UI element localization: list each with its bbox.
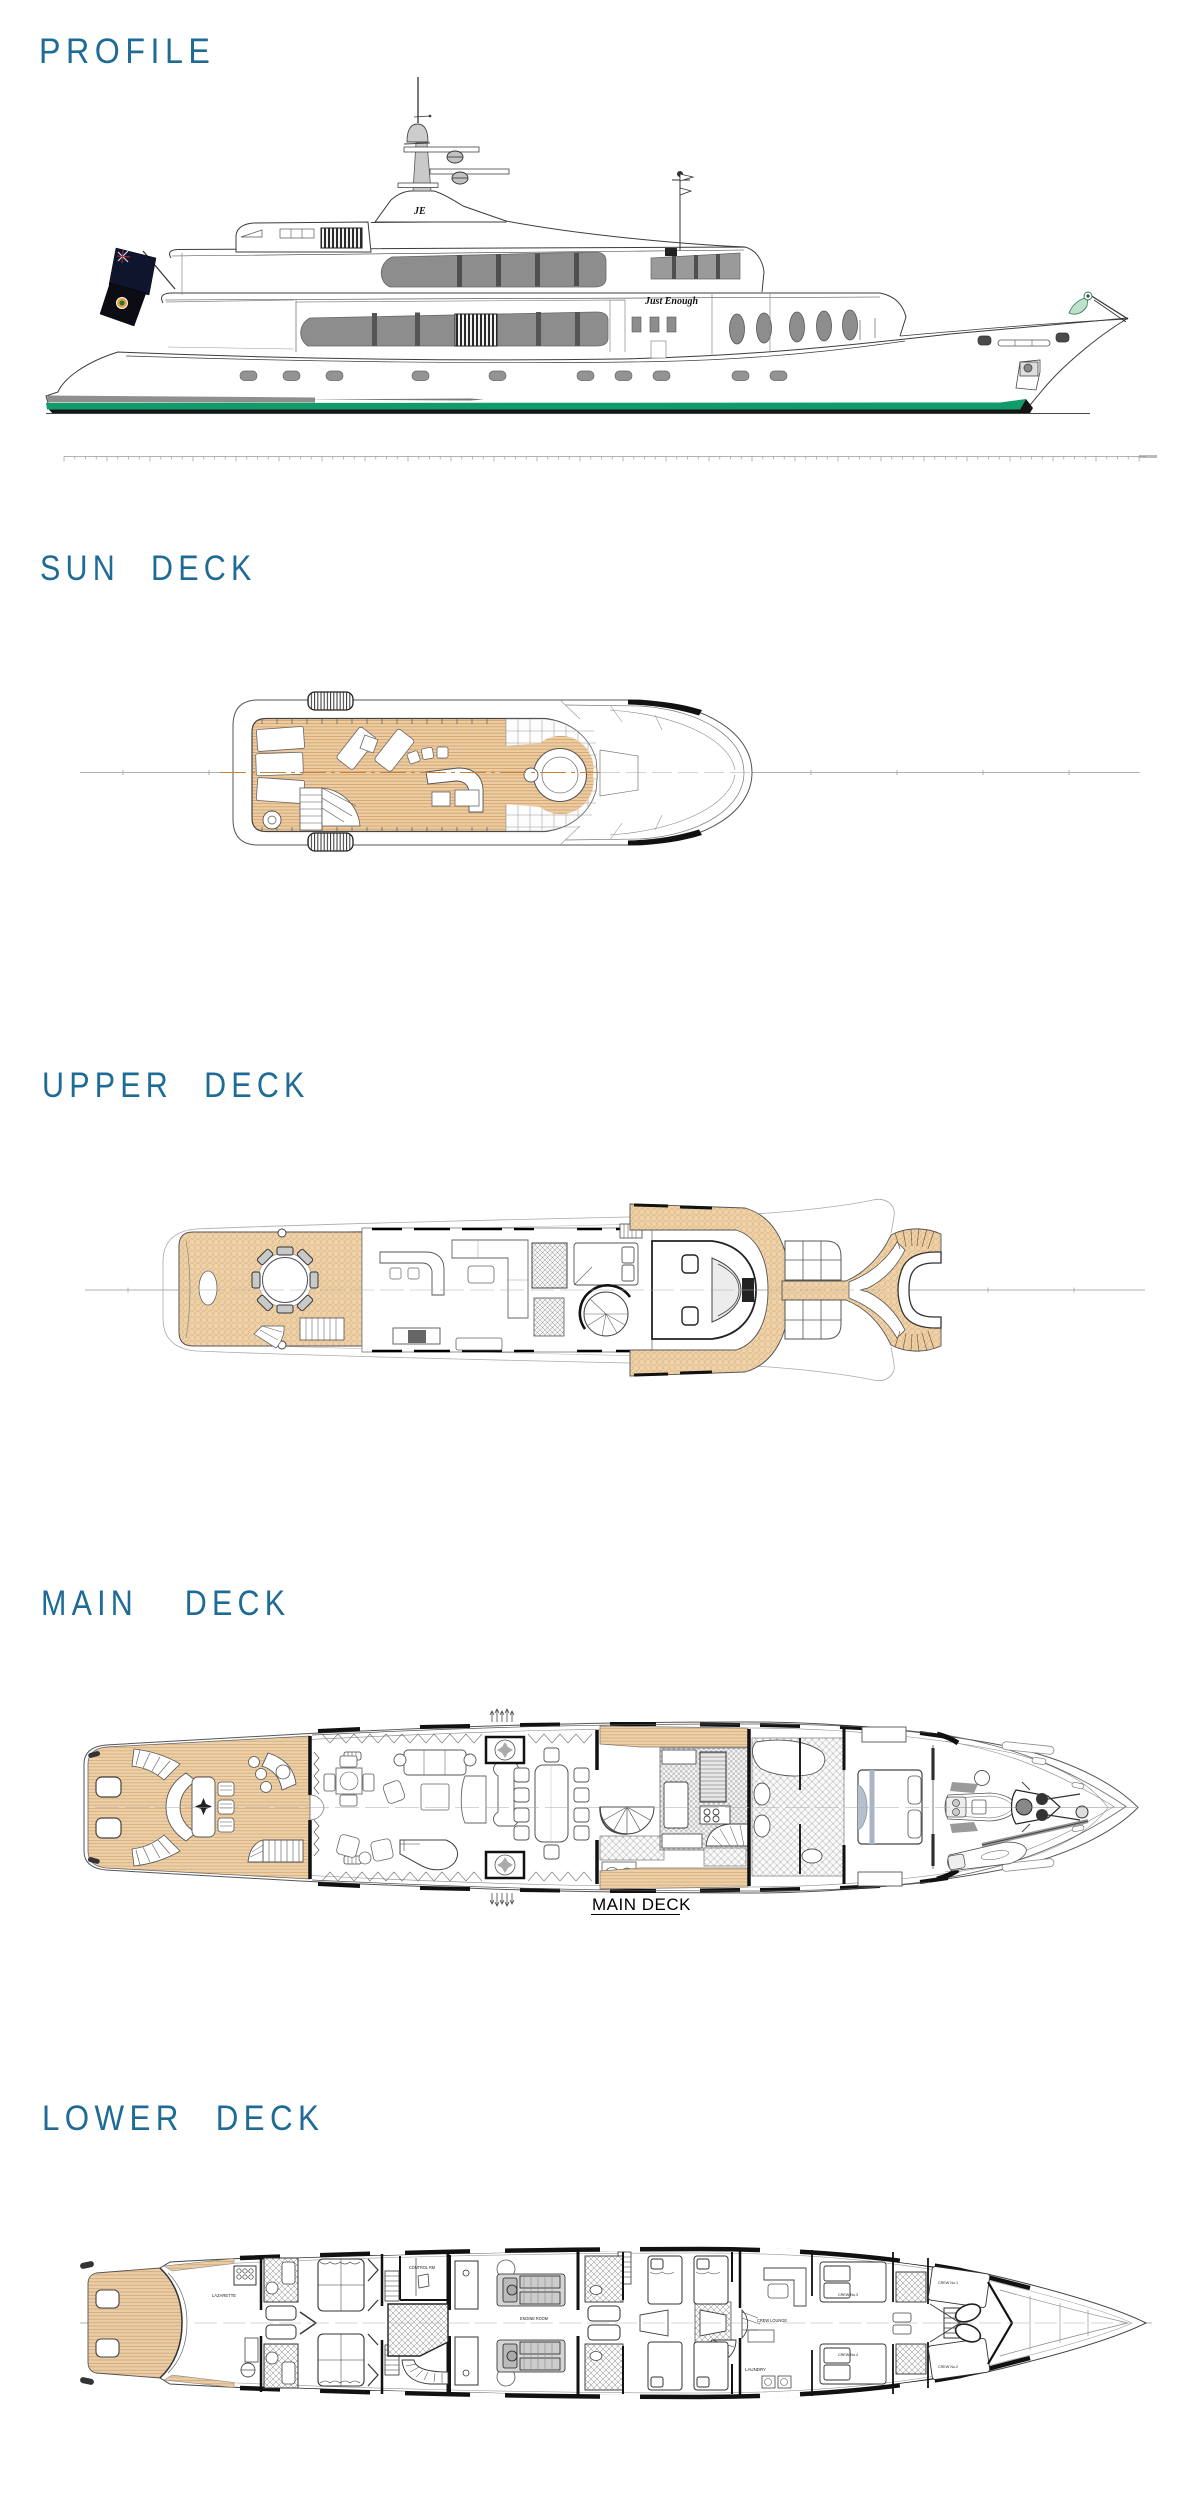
svg-text:CREW No.3: CREW No.3 [838, 2293, 858, 2297]
svg-text:ENGINE ROOM: ENGINE ROOM [520, 2316, 548, 2321]
svg-text:CONTROL RM: CONTROL RM [409, 2265, 435, 2270]
svg-text:LAUNDRY: LAUNDRY [745, 2367, 766, 2372]
svg-text:JE: JE [413, 206, 426, 217]
svg-text:Just Enough: Just Enough [644, 296, 699, 307]
svg-text:CREW No.2: CREW No.2 [938, 2365, 958, 2369]
svg-text:MAIN DECK: MAIN DECK [592, 1895, 691, 1914]
svg-text:CREW No.1: CREW No.1 [938, 2281, 958, 2285]
svg-text:CREW No.4: CREW No.4 [838, 2353, 858, 2357]
svg-text:LAZARETTE: LAZARETTE [212, 2293, 236, 2298]
svg-text:CREW LOUNGE: CREW LOUNGE [757, 2318, 787, 2323]
